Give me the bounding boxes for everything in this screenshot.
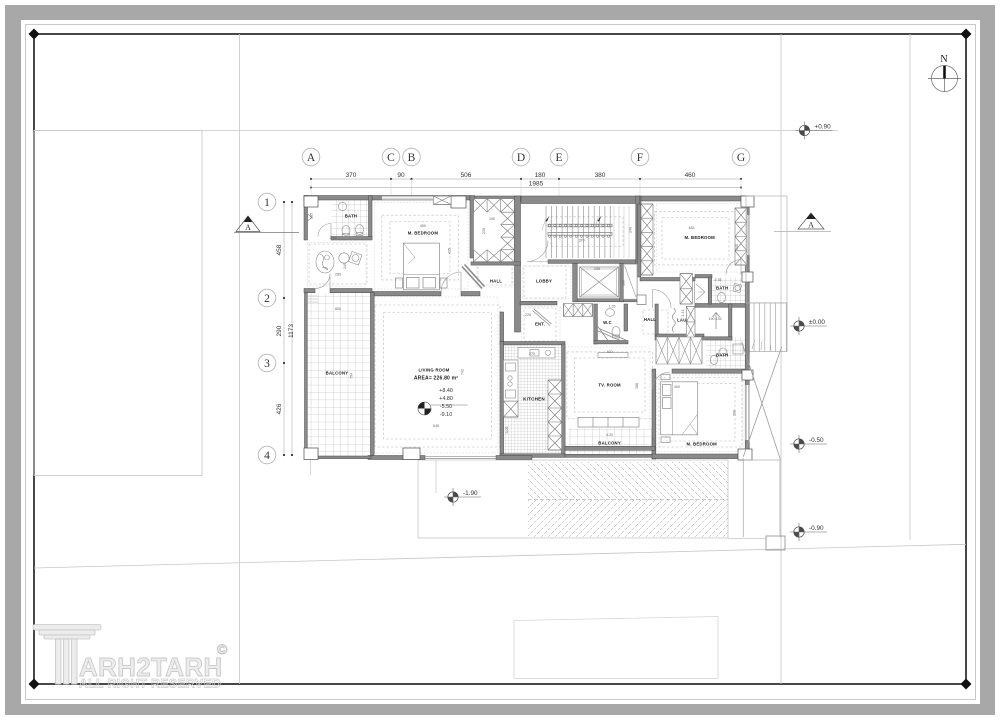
svg-text:+8.40: +8.40 <box>439 388 453 394</box>
svg-text:483: 483 <box>689 226 695 230</box>
svg-text:3.05: 3.05 <box>505 427 509 434</box>
svg-text:4: 4 <box>264 450 270 462</box>
svg-text:2.35: 2.35 <box>715 278 722 282</box>
svg-text:BALCONY: BALCONY <box>598 441 621 446</box>
svg-text:F: F <box>637 152 643 164</box>
svg-text:-9.10: -9.10 <box>440 412 452 418</box>
svg-text:BATH: BATH <box>345 214 357 219</box>
svg-text:-1.90: -1.90 <box>463 490 478 497</box>
svg-text:426: 426 <box>276 403 283 414</box>
svg-text:185: 185 <box>310 213 314 219</box>
svg-text:A: A <box>245 223 251 232</box>
svg-text:TV. ROOM: TV. ROOM <box>598 383 621 388</box>
svg-text:AREA= 226.80 m²: AREA= 226.80 m² <box>414 376 458 382</box>
svg-text:ALL RIGHT RESERVED: ALL RIGHT RESERVED <box>79 677 221 691</box>
svg-text:LAU.: LAU. <box>677 318 688 323</box>
svg-text:A: A <box>307 152 316 164</box>
svg-text:290: 290 <box>276 325 283 336</box>
svg-text:190 135: 190 135 <box>709 317 722 321</box>
svg-text:180: 180 <box>535 172 546 179</box>
svg-text:HALL: HALL <box>644 317 656 322</box>
svg-text:E: E <box>555 152 562 164</box>
svg-text:240: 240 <box>629 227 633 233</box>
svg-text:275: 275 <box>529 352 535 356</box>
svg-text:3: 3 <box>264 358 270 370</box>
svg-text:345: 345 <box>735 244 739 250</box>
svg-text:ENT.: ENT. <box>535 322 545 327</box>
svg-text:285: 285 <box>335 273 341 277</box>
svg-text:370: 370 <box>579 239 585 243</box>
svg-text:450: 450 <box>420 224 426 228</box>
svg-text:1.41: 1.41 <box>681 310 685 317</box>
svg-text:380: 380 <box>595 172 606 179</box>
svg-text:1985: 1985 <box>529 181 544 188</box>
svg-text:-0.50: -0.50 <box>809 437 824 444</box>
svg-text:G: G <box>737 152 745 164</box>
svg-text:N: N <box>940 54 947 65</box>
svg-text:+0.90: +0.90 <box>815 124 832 131</box>
svg-text:420: 420 <box>607 350 613 354</box>
svg-text:2.95: 2.95 <box>330 236 337 240</box>
svg-text:398: 398 <box>733 410 737 416</box>
svg-text:226: 226 <box>525 313 531 317</box>
svg-text:239: 239 <box>482 228 486 234</box>
svg-text:BATH: BATH <box>716 286 728 291</box>
svg-text:460: 460 <box>685 172 696 179</box>
svg-text:KITCHEN: KITCHEN <box>523 397 545 402</box>
svg-text:BALCONY: BALCONY <box>326 371 349 376</box>
svg-text:±0.00: ±0.00 <box>809 319 825 326</box>
svg-text:+4.80: +4.80 <box>439 396 453 402</box>
svg-text:1.35: 1.35 <box>652 438 656 445</box>
svg-text:BATH: BATH <box>716 353 728 358</box>
svg-text:LIVING ROOM: LIVING ROOM <box>418 368 449 373</box>
svg-text:-0.90: -0.90 <box>809 525 824 532</box>
svg-text:458: 458 <box>276 244 283 255</box>
svg-text:M. BEDROOM: M. BEDROOM <box>408 231 439 236</box>
svg-text:W.C: W.C <box>603 320 612 325</box>
svg-text:4.20: 4.20 <box>606 433 613 437</box>
svg-text:2: 2 <box>264 293 270 305</box>
svg-text:435: 435 <box>448 248 452 254</box>
svg-text:HALL: HALL <box>490 279 502 284</box>
svg-text:C: C <box>387 152 395 164</box>
svg-text:1: 1 <box>264 197 270 209</box>
svg-text:400: 400 <box>674 385 680 389</box>
svg-text:B: B <box>408 152 416 164</box>
svg-text:370: 370 <box>346 172 357 179</box>
svg-text:800: 800 <box>335 307 341 311</box>
svg-text:199: 199 <box>594 267 600 271</box>
svg-text:506: 506 <box>461 172 472 179</box>
svg-text:A: A <box>808 221 814 230</box>
svg-text:M. BEDROOM: M. BEDROOM <box>684 235 715 240</box>
svg-text:190: 190 <box>489 217 495 221</box>
svg-text:©: © <box>217 641 228 657</box>
svg-text:M. BEDROOM: M. BEDROOM <box>686 442 717 447</box>
svg-text:742: 742 <box>461 369 465 375</box>
svg-text:LOBBY: LOBBY <box>536 279 552 284</box>
svg-text:90: 90 <box>397 172 405 179</box>
svg-text:1173: 1173 <box>288 324 295 338</box>
svg-text:D: D <box>517 152 525 164</box>
svg-text:754: 754 <box>350 373 354 379</box>
svg-text:1.35: 1.35 <box>609 305 616 309</box>
svg-text:188: 188 <box>635 383 639 389</box>
svg-text:240: 240 <box>343 263 347 269</box>
svg-text:186: 186 <box>622 280 626 286</box>
svg-text:545: 545 <box>433 424 439 428</box>
